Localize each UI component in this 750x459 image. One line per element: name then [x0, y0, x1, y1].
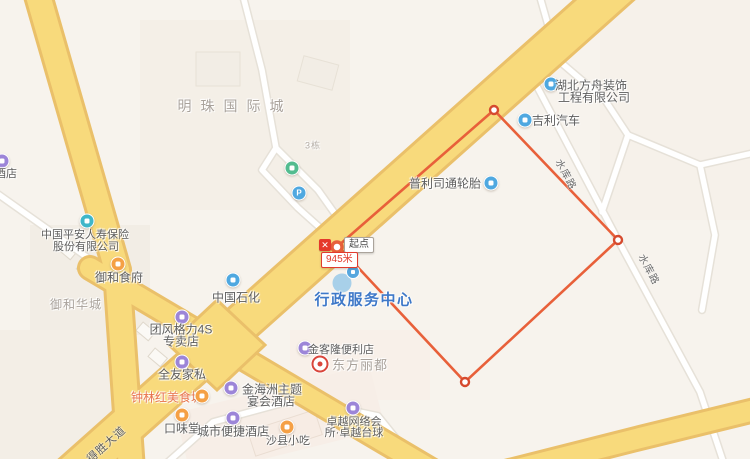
measure-vertex	[461, 378, 469, 386]
car-service-icon	[484, 176, 499, 191]
residence-icon	[312, 356, 329, 373]
area-label-mingzhu: 明珠国际城	[178, 96, 293, 116]
area-label-building-3: 3栋	[305, 139, 321, 152]
restaurant-icon	[195, 389, 210, 404]
parking-icon: P	[292, 186, 307, 201]
car-icon	[518, 113, 533, 128]
gas-station-icon	[226, 273, 241, 288]
measure-vertex	[490, 106, 498, 114]
measure-start-marker	[332, 242, 342, 252]
measure-vertex	[614, 236, 622, 244]
poi-icon-green	[285, 161, 300, 176]
hotel-icon	[224, 381, 239, 396]
measurement-start-tooltip: 起点	[344, 237, 374, 253]
area-label-yuhe-huacheng: 御和华城	[50, 296, 102, 313]
measurement-close-button[interactable]: ✕	[319, 239, 331, 251]
map-viewport[interactable]: 水库路 水库路 得胜大道 明珠国际城 御和华城 3栋 酒店 湖北方舟装饰 工程有…	[0, 0, 750, 459]
measurement-distance-label: 945米	[321, 252, 358, 268]
